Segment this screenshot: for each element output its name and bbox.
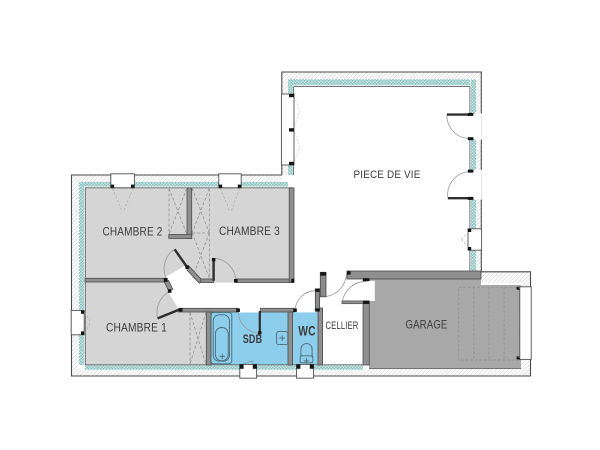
svg-text:CELLIER: CELLIER xyxy=(326,320,359,332)
svg-text:CHAMBRE 2: CHAMBRE 2 xyxy=(103,224,163,238)
svg-text:WC: WC xyxy=(298,324,316,339)
svg-text:CHAMBRE 1: CHAMBRE 1 xyxy=(106,320,167,334)
svg-text:GARAGE: GARAGE xyxy=(406,318,448,332)
svg-text:SDB: SDB xyxy=(243,334,263,346)
svg-text:CHAMBRE 3: CHAMBRE 3 xyxy=(219,224,280,238)
svg-text:PIECE DE VIE: PIECE DE VIE xyxy=(354,169,421,181)
